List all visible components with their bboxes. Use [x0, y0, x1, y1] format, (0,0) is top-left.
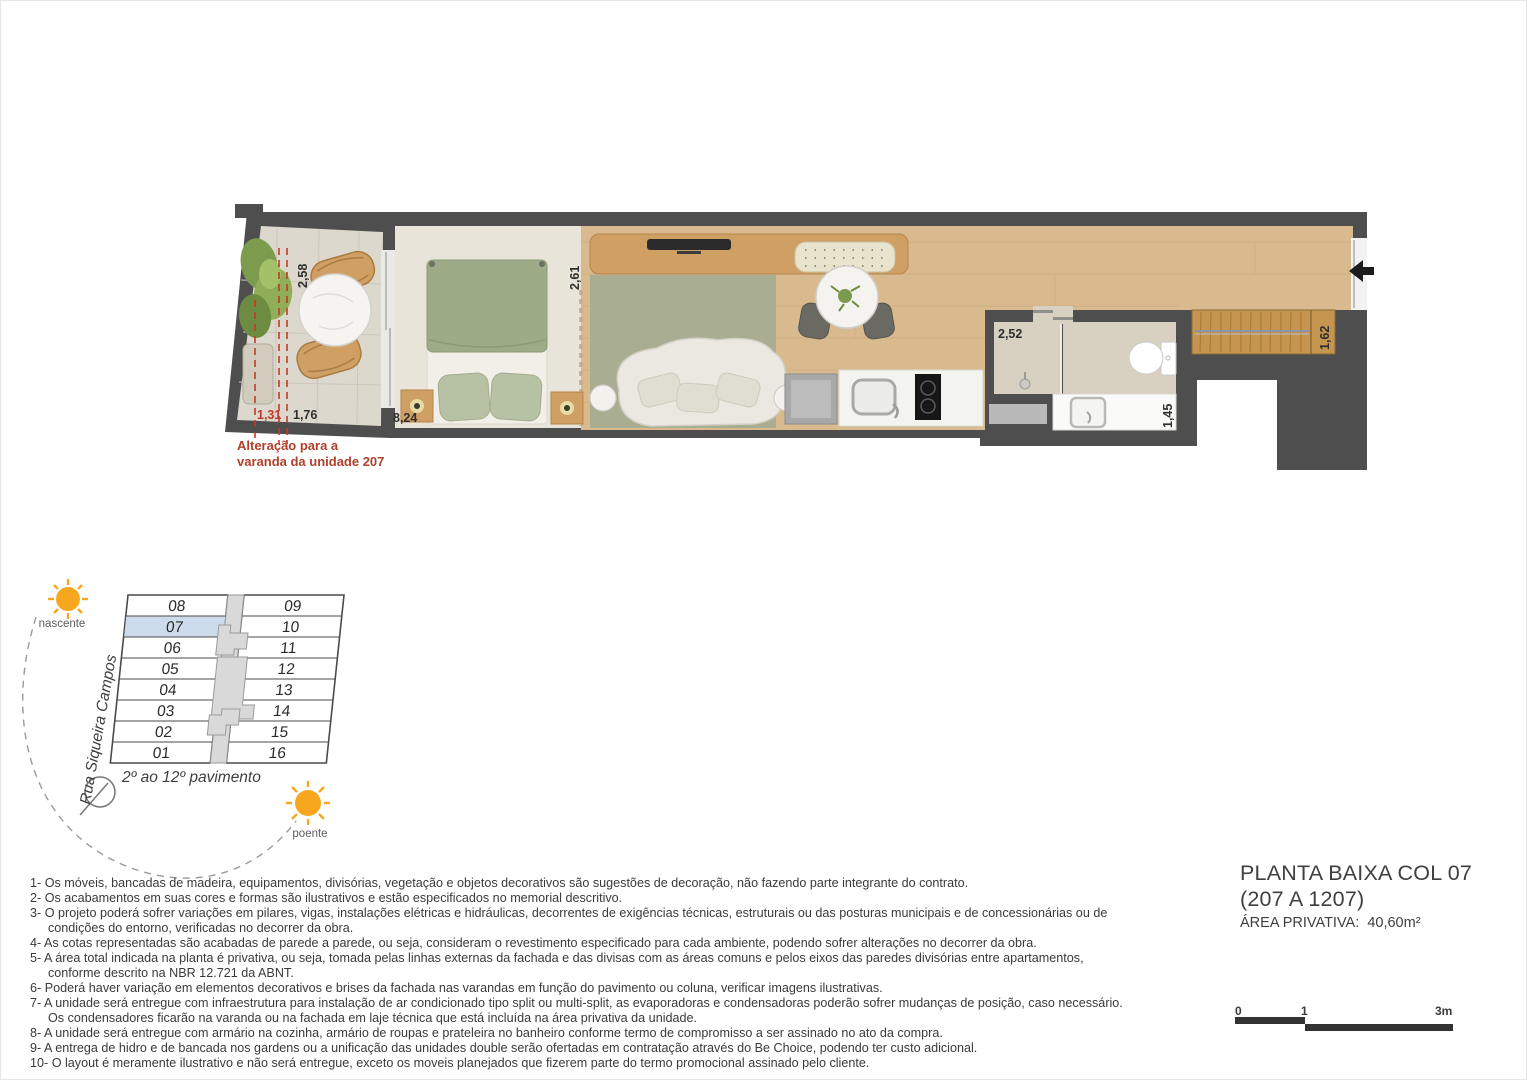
building-grid: 08 07 06 05 04 03 02 01 09 10 11 12 13 1…	[110, 595, 344, 763]
alteration-note-line2: varanda da unidade 207	[237, 454, 384, 469]
dim-bath-depth: 1,45	[1161, 404, 1175, 428]
unit-label: 11	[279, 640, 297, 657]
note-3: 3- O projeto poderá sofrer variações em …	[30, 906, 1135, 936]
tv-icon	[647, 239, 731, 250]
note-9: 9- A entrega de hidro e de bancada nos g…	[30, 1041, 1135, 1056]
dim-balcony-depth: 2,58	[296, 264, 310, 288]
unit-label: 01	[152, 745, 171, 762]
appliance-inner	[791, 380, 831, 418]
title-block: PLANTA BAIXA COL 07 (207 A 1207) ÁREA PR…	[1240, 860, 1472, 931]
sun-icon	[48, 579, 88, 619]
scale-segment-2	[1305, 1024, 1453, 1031]
unit-label: 14	[272, 703, 291, 720]
sun-west-label: poente	[292, 828, 327, 840]
note-5: 5- A área total indicada na planta é pri…	[30, 951, 1135, 981]
unit-label: 16	[268, 745, 287, 762]
dim-balcony-width: 1,76	[293, 408, 317, 422]
note-6: 6- Poderá haver variação em elementos de…	[30, 981, 1135, 996]
unit-label: 15	[270, 724, 289, 741]
notes-block: 1- Os móveis, bancadas de madeira, equip…	[30, 876, 1135, 1071]
private-area-label: ÁREA PRIVATIVA:	[1240, 915, 1359, 931]
dim-living-width: 2,61	[568, 266, 582, 290]
dim-bath-width: 2,52	[998, 327, 1022, 341]
nightstand-right	[551, 392, 583, 424]
wardrobe-icon	[1192, 310, 1335, 354]
sun-east-label: nascente	[39, 618, 86, 630]
bath-mat	[989, 404, 1047, 424]
note-2: 2- Os acabamentos em suas cores e formas…	[30, 891, 1135, 906]
side-table-left-icon	[590, 385, 616, 411]
scale-tick-1: 1	[1301, 1004, 1308, 1018]
bath-sink-icon	[1071, 398, 1105, 427]
note-8: 8- A unidade será entregue com armário n…	[30, 1026, 1135, 1041]
note-4: 4- As cotas representadas são acabadas d…	[30, 936, 1135, 951]
unit-label: 04	[158, 682, 177, 699]
unit-label: 08	[167, 598, 186, 615]
note-7: 7- A unidade será entregue com infraestr…	[30, 996, 1135, 1026]
unit-label: 07	[165, 619, 184, 636]
floor-plan: 2,58 1,31 1,76 8,24 2,61 2,52 1,45 1,62 …	[215, 198, 1375, 498]
kitchen-sink-icon	[853, 380, 895, 414]
balcony-door	[381, 250, 395, 408]
alteration-note-line1: Alteração para a	[237, 438, 339, 453]
private-area: ÁREA PRIVATIVA: 40,60m²	[1240, 915, 1472, 931]
scale-tick-0: 0	[1235, 1004, 1242, 1018]
sofa-icon	[617, 338, 785, 426]
unit-label: 10	[281, 619, 300, 636]
dim-unit-length: 8,24	[393, 411, 417, 425]
unit-label: 12	[277, 661, 296, 678]
key-plan: nascente poente	[10, 575, 390, 895]
note-1: 1- Os móveis, bancadas de madeira, equip…	[30, 876, 1135, 891]
unit-label: 05	[161, 661, 180, 678]
scale-tick-3: 3m	[1435, 1004, 1452, 1018]
unit-label: 13	[274, 682, 293, 699]
floors-label: 2º ao 12º pavimento	[121, 769, 261, 786]
hall-floor	[1181, 226, 1353, 310]
unit-label: 02	[154, 724, 173, 741]
sun-icon	[286, 781, 330, 825]
wall-stub	[235, 204, 263, 218]
note-10: 10- O layout é meramente ilustrativo e n…	[30, 1056, 1135, 1071]
unit-label: 03	[156, 703, 175, 720]
dim-closet-depth: 1,62	[1318, 326, 1332, 350]
scale-segment-1	[1235, 1017, 1305, 1024]
tv-stand	[677, 251, 701, 254]
ghost-equipment	[243, 344, 273, 404]
scale-bar: 0 1 3m	[1235, 1004, 1457, 1034]
private-area-value: 40,60m²	[1367, 915, 1420, 931]
bed-icon	[427, 260, 547, 424]
unit-label: 06	[163, 640, 182, 657]
bathroom-door	[1033, 306, 1073, 324]
plan-title-line1: PLANTA BAIXA COL 07	[1240, 860, 1472, 886]
plan-sheet: { "plan": { "dims": { "balcony_depth": "…	[0, 0, 1527, 1080]
plan-title-line2: (207 A 1207)	[1240, 886, 1472, 912]
unit-label: 09	[283, 598, 302, 615]
toilet-icon	[1129, 342, 1176, 375]
dim-alteration-width: 1,31	[257, 408, 281, 422]
